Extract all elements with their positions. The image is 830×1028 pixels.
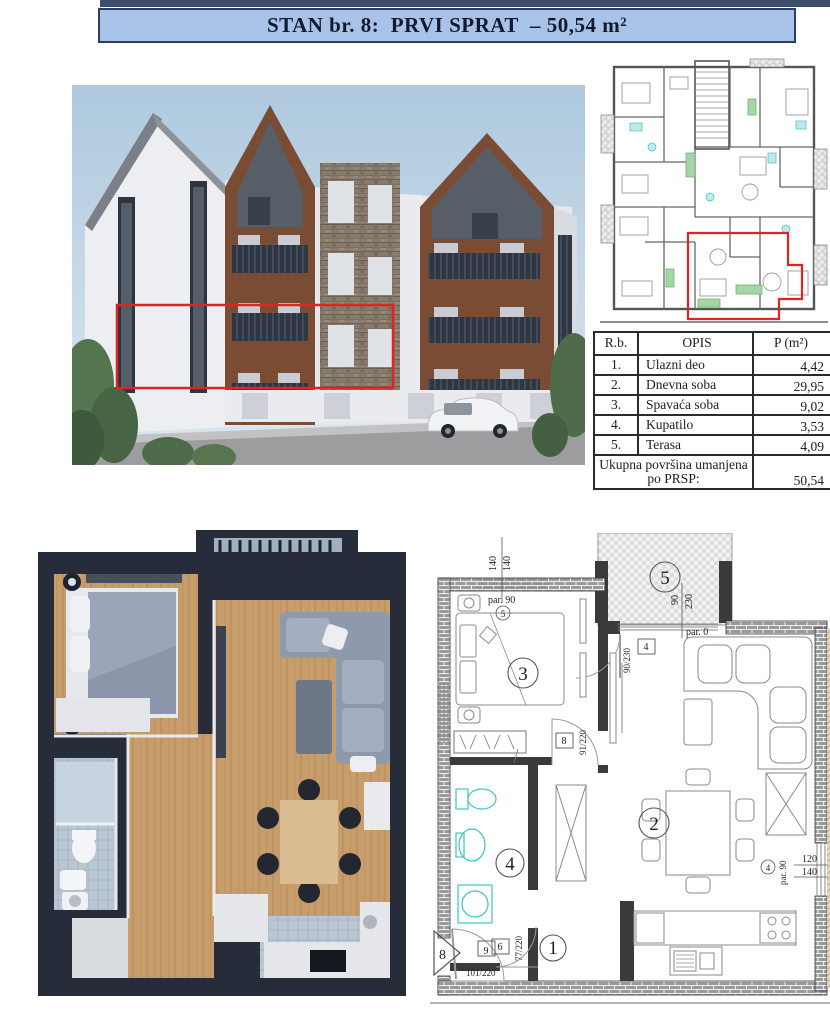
entry-floor (72, 918, 128, 978)
dim-101-220: 101/220 (466, 968, 496, 978)
col-header-desc: OPIS (638, 332, 753, 355)
entry-marker-number: 8 (439, 948, 446, 963)
ref-door6: 6 (498, 942, 503, 953)
bedroom-dresser (56, 698, 150, 732)
table-row: 3. Spavaća soba 9,02 (594, 395, 830, 415)
table-row: 4. Kupatilo 3,53 (594, 415, 830, 435)
ref-door8: 8 (562, 736, 567, 747)
building-render (72, 85, 585, 465)
dim-77-220: 77/220 (514, 935, 524, 961)
ref-door9: 9 (484, 946, 489, 957)
dim-140b: 140 (502, 556, 513, 571)
plan-bed (456, 595, 586, 723)
technical-floor-plan: 8 3 2 4 5 1 140 140 par. 90 5 90 230 par… (430, 533, 830, 1023)
hall-floor (128, 734, 214, 978)
dim-90-230: 90/230 (622, 647, 632, 673)
dim-140r: 140 (802, 867, 817, 878)
top-strip (100, 0, 830, 7)
room-3: 3 (518, 664, 528, 685)
tower1-balconies (232, 235, 308, 411)
table-row: 1. Ulazni deo 4,42 (594, 355, 830, 375)
row-area: 4,42 (753, 355, 830, 375)
room-5: 5 (660, 568, 670, 589)
interior-3d-render (28, 530, 420, 1008)
col-header-area: P (m²) (753, 332, 830, 355)
room-4: 4 (505, 854, 515, 875)
plan-dining (642, 769, 754, 893)
row-area: 9,02 (753, 395, 830, 415)
dim-par90-top: par. 90 (488, 595, 515, 606)
table-row: 5. Terasa 4,09 (594, 435, 830, 455)
dim-120: 120 (802, 854, 817, 865)
tv-cabinet (216, 626, 226, 758)
row-area: 4,09 (753, 435, 830, 455)
plan-sofa (684, 637, 812, 769)
row-desc: Terasa (638, 435, 753, 455)
row-desc: Spavaća soba (638, 395, 753, 415)
row-desc: Ulazni deo (638, 355, 753, 375)
dim-par0: par. 0 (686, 627, 708, 638)
sideboard (364, 782, 390, 830)
dim-90: 90 (670, 595, 681, 605)
plan-kitchen (634, 911, 796, 975)
title-banner: STAN br. 8: PRVI SPRAT – 50,54 m² (98, 8, 796, 43)
ref-5: 5 (501, 609, 506, 619)
total-value: 50,54 (753, 455, 830, 489)
ref-door4: 4 (644, 642, 649, 653)
tower2-balconies (428, 243, 540, 405)
dim-230: 230 (684, 594, 695, 609)
row-area: 3,53 (753, 415, 830, 435)
ref-win4: 4 (766, 863, 771, 873)
row-num: 5. (594, 435, 638, 455)
total-label: Ukupna površina umanjena po PRSP: (594, 455, 753, 489)
room-1: 1 (548, 938, 558, 959)
area-table: R.b. OPIS P (m²) 1. Ulazni deo 4,42 2. D… (593, 331, 830, 490)
curtains (86, 574, 182, 583)
page-title: STAN br. 8: PRVI SPRAT – 50,54 m² (267, 13, 627, 38)
dim-140a: 140 (488, 556, 499, 571)
table-row: 2. Dnevna soba 29,95 (594, 375, 830, 395)
row-num: 2. (594, 375, 638, 395)
row-area: 29,95 (753, 375, 830, 395)
row-desc: Dnevna soba (638, 375, 753, 395)
row-num: 4. (594, 415, 638, 435)
storey-overview-plan (600, 57, 828, 325)
plan-bath (456, 789, 496, 923)
dim-91-220: 91/220 (578, 729, 588, 755)
table-total-row: Ukupna površina umanjena po PRSP: 50,54 (594, 455, 830, 489)
dim-par90-right: par. 90 (778, 860, 788, 885)
room-2: 2 (649, 814, 659, 835)
col-header-num: R.b. (594, 332, 638, 355)
row-num: 1. (594, 355, 638, 375)
row-num: 3. (594, 395, 638, 415)
coffee-table (296, 680, 332, 754)
row-desc: Kupatilo (638, 415, 753, 435)
table-header-row: R.b. OPIS P (m²) (594, 332, 830, 355)
